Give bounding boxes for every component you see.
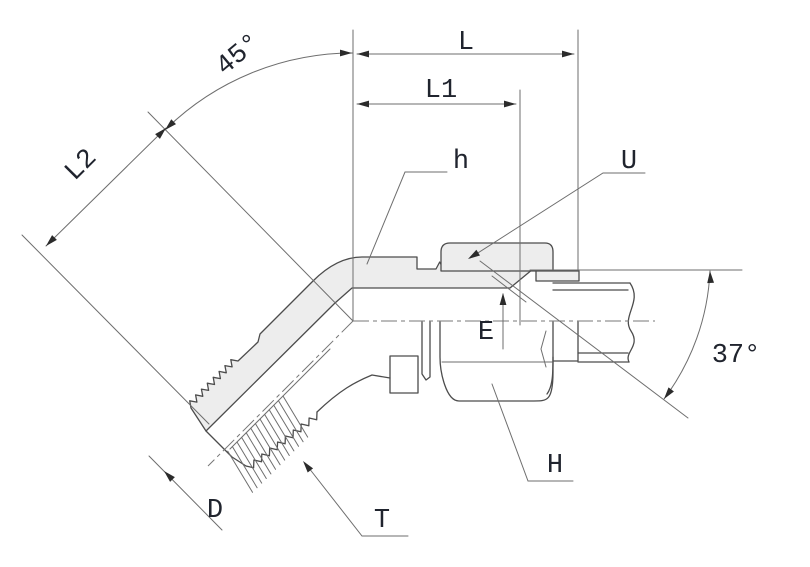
dimension-angle-45: 45° <box>165 28 353 130</box>
nut-external <box>440 322 578 401</box>
dimension-L2: L2 <box>46 128 166 246</box>
dim-label-L1: L1 <box>425 76 457 106</box>
dimension-L1: L1 <box>357 76 516 106</box>
dimension-L: L <box>357 28 574 58</box>
leader-U: U <box>470 147 645 258</box>
dim-label-E: E <box>478 318 494 348</box>
label-T: T <box>374 506 390 536</box>
thread-crest-lines <box>228 396 308 492</box>
flare-cone-line <box>480 261 688 418</box>
dim-label-45deg: 45° <box>211 28 268 82</box>
technical-drawing-page: L L1 L2 45° 37° D E h U T H <box>0 0 810 567</box>
leader-H: H <box>492 384 573 481</box>
dimension-angle-37: 37° <box>664 271 760 399</box>
coupling-nut-section <box>441 243 553 271</box>
ferrule-section <box>536 271 579 281</box>
tube-break-line <box>628 283 634 362</box>
dim-label-D: D <box>207 496 223 526</box>
tube <box>553 283 634 362</box>
leader-T: T <box>305 463 408 536</box>
label-h: h <box>453 147 469 177</box>
dim-label-L: L <box>458 28 474 58</box>
dimension-D: D <box>149 456 223 530</box>
label-H: H <box>547 451 563 481</box>
body-flats-external <box>390 322 430 393</box>
dim-label-37deg: 37° <box>712 341 761 371</box>
fitting-drawing: L L1 L2 45° 37° D E h U T H <box>0 0 810 567</box>
label-U: U <box>621 147 637 177</box>
dim-label-L2: L2 <box>60 144 104 188</box>
